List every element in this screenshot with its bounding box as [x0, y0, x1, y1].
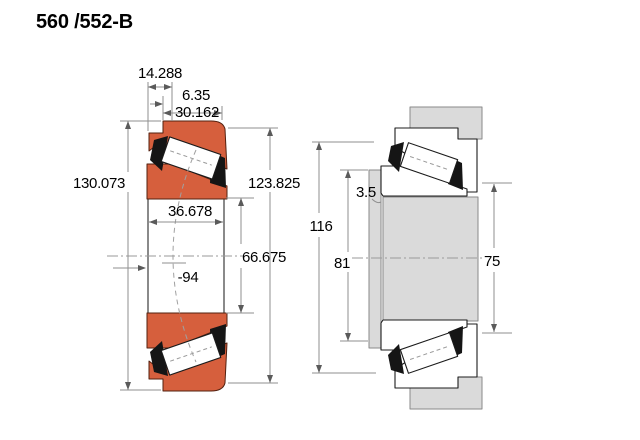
shaft-section	[383, 197, 478, 321]
dim-label-130-073: 130.073	[73, 175, 125, 192]
right-view-mounting	[352, 107, 482, 409]
left-view-bearing-section	[107, 121, 243, 391]
dim-label-81: 81	[334, 255, 350, 272]
dim-label-123-825: 123.825	[248, 175, 300, 192]
dim-label-30-162: 30.162	[175, 104, 219, 121]
dim-label-75: 75	[484, 253, 500, 270]
dim-label-66-675: 66.675	[242, 249, 286, 266]
dim-label-6-35: 6.35	[182, 87, 210, 104]
bearing-drawing: 14.288 6.35 30.162 130.073 123.825 36.67…	[0, 0, 640, 440]
dim-label-neg-94: -94	[178, 269, 199, 286]
dim-label-116: 116	[309, 218, 332, 235]
dim-label-36-678: 36.678	[168, 203, 212, 220]
dim-label-3-5: 3.5	[356, 184, 376, 201]
dim-label-14-288: 14.288	[138, 65, 182, 82]
drawing-page: 560 /552-B	[0, 0, 640, 440]
